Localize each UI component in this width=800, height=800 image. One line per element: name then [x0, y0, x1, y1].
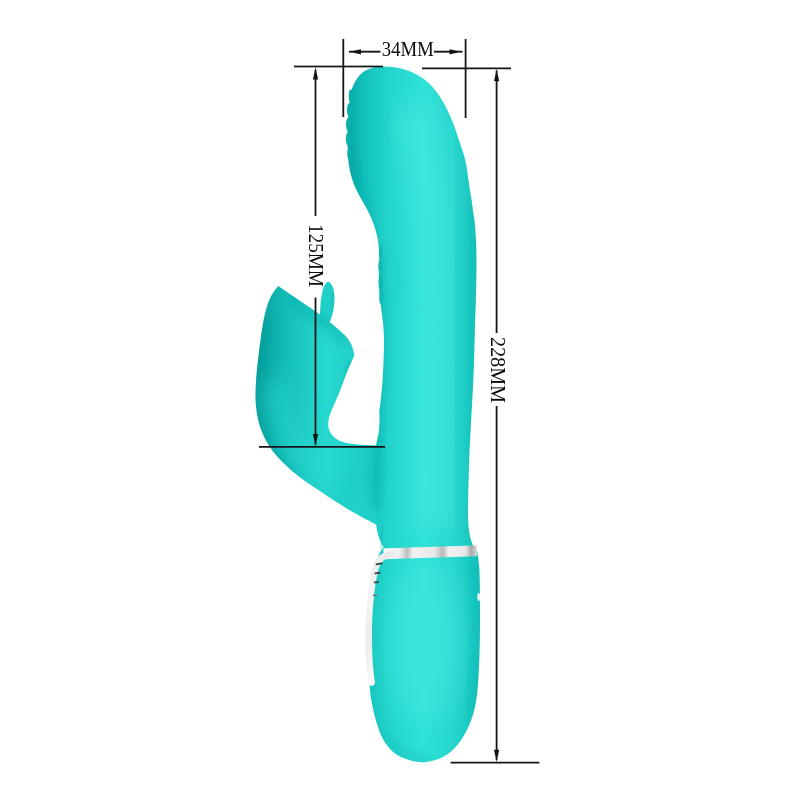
svg-text:125MM: 125MM [304, 224, 328, 287]
svg-text:228MM: 228MM [486, 337, 510, 403]
svg-text:34MM: 34MM [382, 37, 434, 61]
